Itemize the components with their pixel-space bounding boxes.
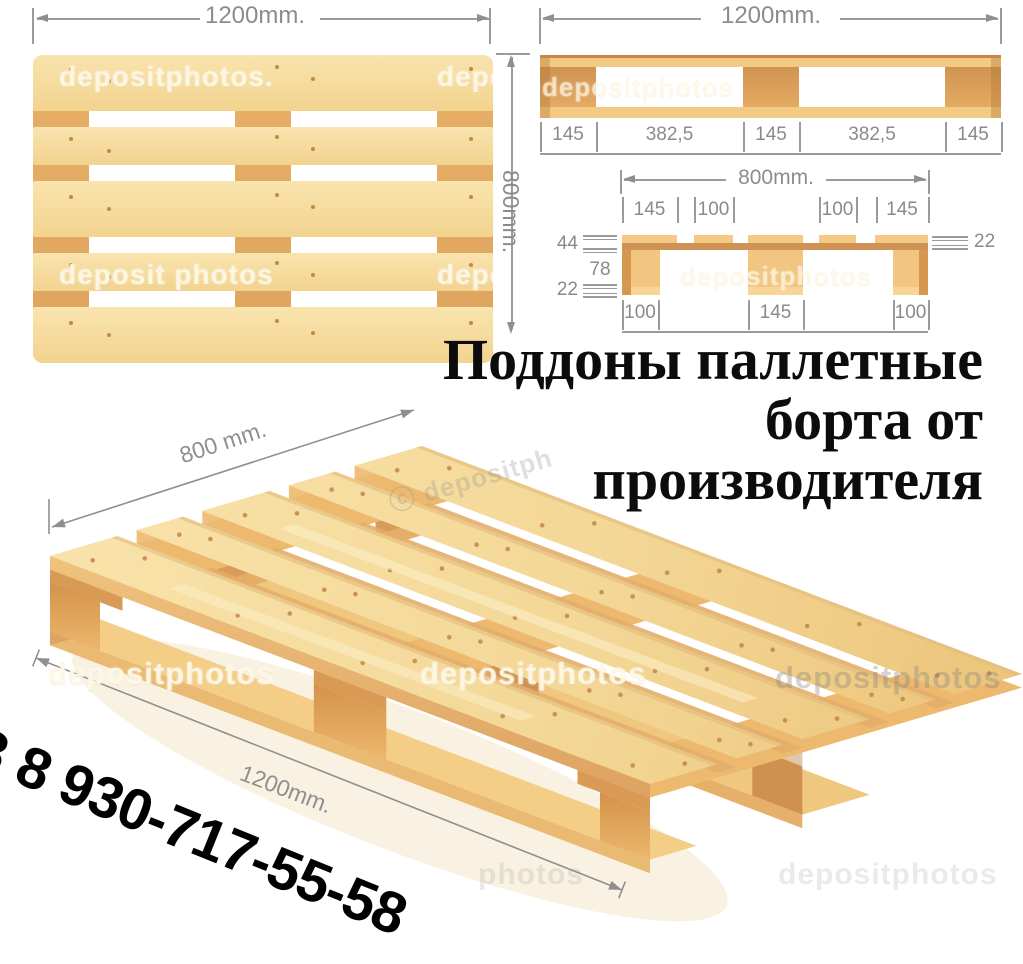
watermark: depositphotos. [59,61,274,93]
dim-tick [489,8,491,44]
eq-tick [932,240,968,242]
pallet-end-view: depositphotos [622,235,928,295]
watermark: depositphotos [775,660,1002,696]
eq-tick [583,288,617,290]
dim-tick [32,8,34,44]
deck-board-end [622,235,677,243]
dim-tick [539,8,541,44]
eq-tick [583,293,617,295]
dim-line [320,18,489,20]
top-view-width-label: 1200mm. [180,2,330,30]
side-view-width-label: 1200mm. [700,2,842,30]
dim-tick [677,197,679,223]
dim-tick [856,197,858,223]
arrow-right-icon [914,175,926,183]
measure-label: 145 [540,124,596,146]
eq-tick [932,236,968,238]
end-measure-44: 44 [546,233,578,255]
eq-tick [932,245,968,247]
watermark: depositphotos [48,656,275,692]
eq-tick [583,248,617,250]
pallet-ad-image: 1200mm. depositphotos. depos deposit pho… [0,0,1023,964]
dim-tick [803,300,805,330]
dim-tick [733,197,735,223]
deck-board [33,181,493,237]
dim-line [840,18,998,20]
measure-label: 100 [622,302,658,324]
measure-label: 100 [694,199,733,221]
end-measure-22: 22 [546,279,578,301]
nail-dots [69,195,73,199]
measure-label: 145 [748,302,803,324]
deck-board [33,307,493,363]
deck-board [33,127,493,165]
edge-shade [991,58,1001,118]
edge-shade [919,250,928,295]
side-view-measures: 145382,5145382,5145 [540,122,1001,156]
dim-baseline [540,153,1001,155]
headline-line-1: Поддоны паллетные [443,330,983,390]
measure-label: 145 [876,199,928,221]
eq-tick [583,252,617,254]
headline: Поддоны паллетные борта от производителя [443,330,983,510]
arrow-left-icon [542,14,554,22]
eq-tick [583,296,617,298]
pallet-side-view: depositphotos [540,55,1001,118]
top-view-height-label: 800mm. [497,170,524,253]
dim-tick [1001,122,1003,152]
watermark: depos [437,61,493,93]
deck-board-end [875,235,928,243]
dim-tick [928,197,930,223]
measure-label: 100 [893,302,928,324]
deck-board-end [748,235,803,243]
nail-dots [69,137,73,141]
eq-tick [583,235,617,237]
dim-tick [658,300,660,330]
pallet-top-view: depositphotos. depos deposit photos depo… [33,55,493,363]
dim-tick [928,300,930,330]
dim-line [624,179,726,181]
nail-dots [69,321,73,325]
end-measure-right-22: 22 [974,231,995,253]
arrow-left-icon [36,14,48,22]
watermark: photos [478,858,584,892]
arrow-left-icon [623,175,635,183]
measure-label: 100 [819,199,856,221]
watermark: depositphotos [680,261,872,292]
watermark: depos [437,259,493,291]
watermark: depositphotos [420,656,647,692]
edge-shade [622,250,631,295]
measure-label: 145 [622,199,677,221]
measure-label: 382,5 [799,124,945,146]
bottom-deck-edge [540,107,1001,118]
arrow-right-icon [986,14,998,22]
end-view-top-measures: 145100100145 [622,197,928,225]
headline-line-3: производителя [443,450,983,510]
eq-tick [932,248,968,250]
measure-label: 382,5 [596,124,743,146]
watermark: depositphotos [778,858,998,892]
headline-line-2: борта от [443,390,983,450]
arrow-up-icon [507,55,515,67]
dim-line [826,179,926,181]
fork-window [799,67,945,107]
eq-tick [583,239,617,241]
arrow-right-icon [477,14,489,22]
top-deck-edge [540,58,1001,67]
dim-line [543,18,701,20]
end-view-width-label: 800mm. [723,166,829,190]
transverse-board [622,243,928,250]
end-measure-78: 78 [586,259,614,281]
dim-tick [1000,8,1002,44]
deck-board-end [694,235,733,243]
dim-line [37,18,200,20]
dim-tick [928,170,930,194]
dim-tick [620,170,622,194]
measure-label: 145 [743,124,799,146]
watermark: depositphotos [542,72,734,103]
watermark: deposit photos [59,259,274,291]
measure-label: 145 [945,124,1001,146]
deck-board-end [819,235,856,243]
eq-tick [583,284,617,286]
